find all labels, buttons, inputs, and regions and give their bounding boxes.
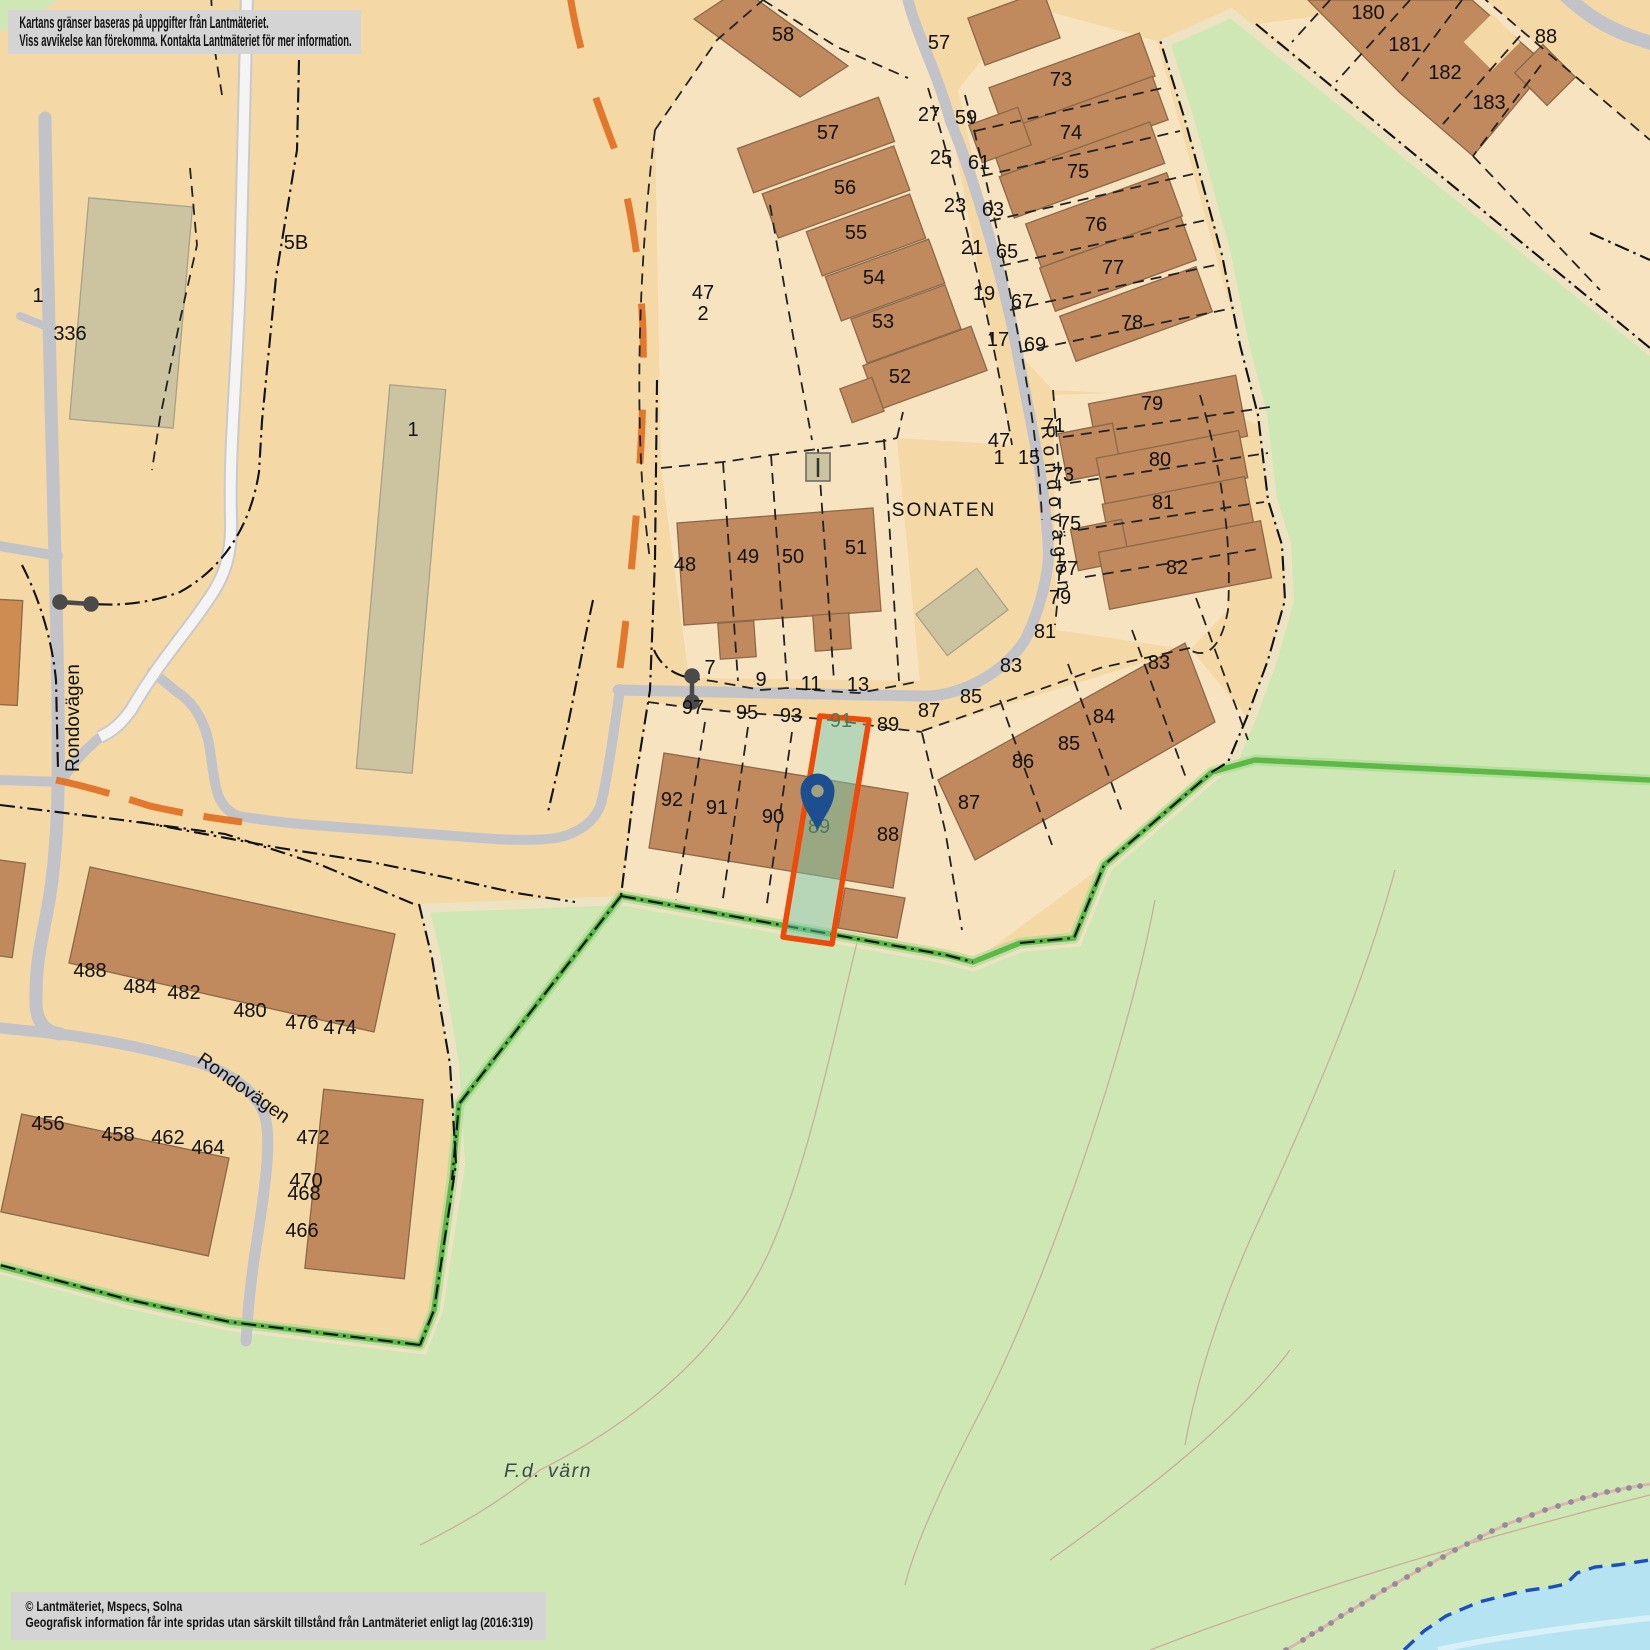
svg-text:7: 7 — [704, 657, 715, 679]
svg-text:86: 86 — [1012, 751, 1034, 773]
svg-text:458: 458 — [101, 1124, 134, 1146]
svg-text:474: 474 — [323, 1017, 356, 1039]
svg-text:83: 83 — [1148, 652, 1170, 674]
svg-text:84: 84 — [1093, 706, 1115, 728]
svg-text:75: 75 — [1067, 161, 1089, 183]
svg-text:27: 27 — [918, 104, 940, 126]
svg-text:61: 61 — [968, 152, 990, 174]
svg-text:49: 49 — [737, 546, 759, 568]
svg-text:81: 81 — [1034, 621, 1056, 643]
svg-text:89: 89 — [877, 714, 899, 736]
svg-text:79: 79 — [1141, 393, 1163, 415]
svg-text:11: 11 — [801, 673, 822, 695]
svg-text:53: 53 — [872, 311, 894, 333]
svg-text:1: 1 — [32, 285, 43, 307]
svg-text:77: 77 — [1102, 257, 1124, 279]
svg-text:47: 47 — [692, 282, 714, 304]
svg-text:23: 23 — [944, 195, 966, 217]
svg-text:54: 54 — [863, 267, 885, 289]
svg-text:462: 462 — [151, 1127, 184, 1149]
svg-text:5B: 5B — [284, 232, 308, 254]
svg-text:88: 88 — [1535, 26, 1557, 48]
svg-text:69: 69 — [1024, 334, 1046, 356]
svg-text:63: 63 — [982, 199, 1004, 221]
svg-text:67: 67 — [1011, 291, 1033, 313]
svg-text:464: 464 — [191, 1137, 224, 1159]
svg-text:56: 56 — [834, 177, 856, 199]
svg-text:97: 97 — [682, 697, 704, 719]
svg-text:85: 85 — [1058, 733, 1080, 755]
svg-text:336: 336 — [53, 323, 86, 345]
svg-text:15: 15 — [1018, 447, 1040, 469]
svg-text:21: 21 — [961, 237, 983, 259]
svg-text:76: 76 — [1085, 214, 1107, 236]
svg-text:73: 73 — [1050, 69, 1072, 91]
svg-text:78: 78 — [1121, 312, 1143, 334]
svg-text:456: 456 — [31, 1113, 64, 1135]
svg-text:87: 87 — [958, 792, 980, 814]
svg-text:2: 2 — [697, 303, 708, 325]
svg-text:181: 181 — [1388, 34, 1421, 56]
svg-text:48: 48 — [674, 554, 696, 576]
svg-text:91: 91 — [706, 797, 728, 819]
svg-text:57: 57 — [817, 122, 839, 144]
svg-text:180: 180 — [1351, 2, 1384, 24]
svg-text:95: 95 — [736, 702, 758, 724]
svg-text:1: 1 — [993, 447, 1004, 469]
svg-text:17: 17 — [987, 329, 1009, 351]
svg-text:83: 83 — [1000, 655, 1022, 677]
svg-text:13: 13 — [847, 674, 869, 696]
svg-text:82: 82 — [1166, 557, 1188, 579]
svg-text:SONATEN: SONATEN — [892, 500, 996, 521]
svg-text:466: 466 — [285, 1220, 318, 1242]
svg-text:25: 25 — [930, 147, 952, 169]
svg-text:51: 51 — [845, 537, 867, 559]
svg-text:F.d. värn: F.d. värn — [504, 1460, 592, 1482]
svg-text:90: 90 — [762, 806, 784, 828]
svg-text:488: 488 — [73, 960, 106, 982]
svg-text:472: 472 — [296, 1127, 329, 1149]
svg-text:1: 1 — [407, 419, 418, 441]
svg-text:Rondovägen: Rondovägen — [63, 664, 84, 772]
svg-text:9: 9 — [755, 669, 766, 691]
svg-text:91: 91 — [830, 710, 852, 732]
svg-text:484: 484 — [123, 976, 156, 998]
svg-text:85: 85 — [960, 686, 982, 708]
svg-text:476: 476 — [285, 1012, 318, 1034]
svg-text:55: 55 — [845, 222, 867, 244]
svg-text:80: 80 — [1149, 449, 1171, 471]
svg-text:480: 480 — [233, 1000, 266, 1022]
svg-text:59: 59 — [955, 107, 977, 129]
svg-text:482: 482 — [167, 982, 200, 1004]
svg-text:81: 81 — [1152, 492, 1174, 514]
svg-text:92: 92 — [661, 789, 683, 811]
svg-text:182: 182 — [1428, 62, 1461, 84]
svg-text:88: 88 — [877, 824, 899, 846]
svg-text:52: 52 — [889, 366, 911, 388]
svg-text:468: 468 — [287, 1183, 320, 1205]
svg-text:19: 19 — [973, 283, 995, 305]
svg-text:65: 65 — [996, 241, 1018, 263]
svg-text:183: 183 — [1472, 92, 1505, 114]
svg-text:74: 74 — [1060, 122, 1082, 144]
svg-text:93: 93 — [780, 705, 802, 727]
svg-text:87: 87 — [918, 700, 940, 722]
svg-text:50: 50 — [782, 546, 804, 568]
svg-text:58: 58 — [772, 24, 794, 46]
svg-text:57: 57 — [928, 32, 950, 54]
